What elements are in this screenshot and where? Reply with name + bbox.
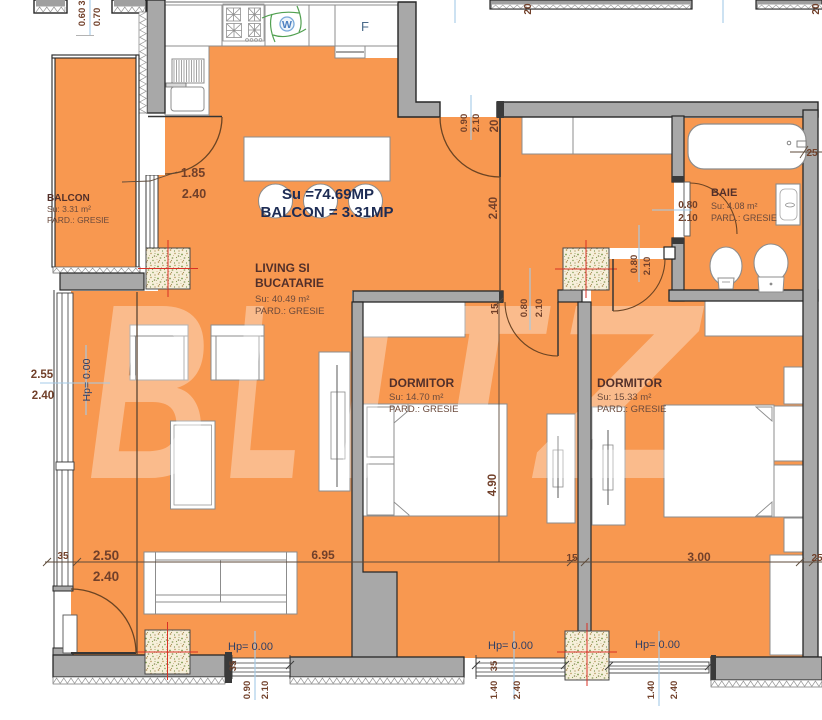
svg-text:35: 35	[228, 660, 239, 671]
svg-text:B: B	[88, 252, 210, 531]
svg-text:20: 20	[811, 3, 822, 15]
svg-text:2.40: 2.40	[488, 197, 500, 219]
svg-text:0.80: 0.80	[678, 200, 698, 211]
svg-text:2.40: 2.40	[182, 187, 206, 201]
svg-text:Su: 15.33 m²: Su: 15.33 m²	[597, 392, 651, 403]
svg-text:2.40: 2.40	[669, 681, 680, 700]
svg-text:0.70: 0.70	[92, 8, 103, 27]
svg-text:15: 15	[566, 553, 578, 564]
svg-text:25: 25	[811, 553, 822, 564]
svg-text:3.00: 3.00	[687, 550, 711, 564]
svg-text:W: W	[282, 19, 292, 31]
svg-text:4.90: 4.90	[487, 474, 499, 496]
svg-text:15: 15	[490, 303, 501, 315]
svg-text:PARD.: GRESIE: PARD.: GRESIE	[389, 404, 459, 415]
svg-text:1.40: 1.40	[489, 681, 500, 700]
svg-text:F: F	[361, 19, 369, 34]
svg-text:20: 20	[523, 3, 534, 15]
svg-text:1.85: 1.85	[181, 166, 205, 180]
svg-text:DORMITOR: DORMITOR	[389, 376, 454, 390]
svg-text:BALCON = 3.31MP: BALCON = 3.31MP	[261, 204, 394, 221]
svg-text:1.40: 1.40	[646, 681, 657, 700]
svg-text:LIVING SI: LIVING SI	[255, 261, 310, 275]
svg-text:Su: 40.49 m²: Su: 40.49 m²	[255, 294, 309, 305]
svg-text:Hp= 0.00: Hp= 0.00	[488, 640, 533, 652]
svg-text:PARD.: GRESIE: PARD.: GRESIE	[711, 213, 777, 223]
svg-text:2.10: 2.10	[471, 114, 482, 133]
svg-text:Hp= 0.00: Hp= 0.00	[228, 641, 273, 653]
svg-text:0.80: 0.80	[519, 299, 530, 318]
svg-text:0.90: 0.90	[459, 114, 470, 133]
svg-text:PARD.: GRESIE: PARD.: GRESIE	[255, 306, 325, 317]
svg-text:0.60: 0.60	[77, 8, 88, 27]
svg-text:25: 25	[806, 148, 818, 159]
svg-text:0.90: 0.90	[242, 681, 253, 700]
svg-text:2.40: 2.40	[32, 390, 54, 402]
svg-text:3: 3	[77, 0, 87, 5]
svg-text:0.80: 0.80	[629, 255, 640, 274]
svg-text:2.40: 2.40	[512, 681, 523, 700]
svg-text:BUCATARIE: BUCATARIE	[255, 276, 324, 290]
svg-text:BALCON: BALCON	[47, 193, 90, 204]
svg-text:Su: 4.08 m²: Su: 4.08 m²	[711, 201, 758, 211]
svg-text:2.55: 2.55	[31, 369, 54, 381]
svg-text:6.95: 6.95	[311, 548, 335, 562]
svg-text:35: 35	[57, 551, 69, 562]
svg-text:Su: 14.70 m²: Su: 14.70 m²	[389, 392, 443, 403]
svg-text:PARD.: GRESIE: PARD.: GRESIE	[597, 404, 667, 415]
svg-text:BAIE: BAIE	[711, 187, 737, 199]
svg-text:Su =74.69MP: Su =74.69MP	[282, 186, 374, 203]
svg-text:2.10: 2.10	[642, 257, 653, 276]
svg-text:20: 20	[489, 120, 501, 133]
svg-text:2.40: 2.40	[93, 569, 119, 584]
svg-text:Su: 3.31 m²: Su: 3.31 m²	[47, 204, 91, 214]
svg-text:Hp= 0.00: Hp= 0.00	[635, 639, 680, 651]
svg-text:35: 35	[489, 660, 500, 671]
svg-text:DORMITOR: DORMITOR	[597, 376, 662, 390]
svg-text:2.50: 2.50	[93, 548, 119, 563]
svg-text:2.10: 2.10	[678, 213, 698, 224]
svg-text:Hp= 0.00: Hp= 0.00	[81, 358, 93, 401]
svg-text:PARD.: GRESIE: PARD.: GRESIE	[47, 215, 110, 225]
svg-text:2.10: 2.10	[534, 299, 545, 318]
svg-text:2.10: 2.10	[260, 681, 271, 700]
